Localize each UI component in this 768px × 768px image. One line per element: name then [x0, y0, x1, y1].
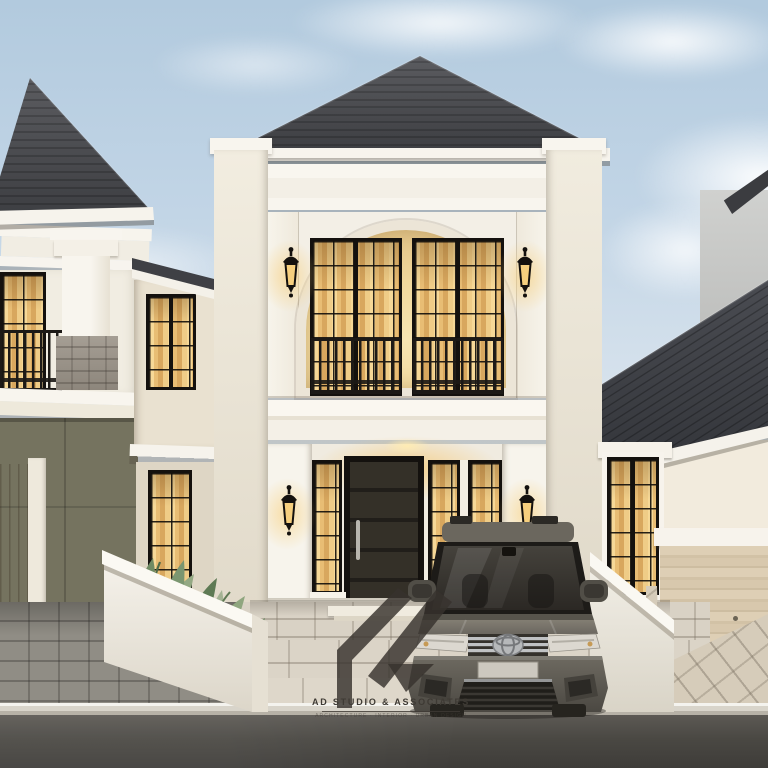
watermark-studio-name: AD STUDIO & ASSOCIATES: [296, 697, 486, 707]
watermark-tagline: ARCHITECTURE · INTERIOR · URBAN DESIGN: [296, 713, 486, 719]
logo-triangle: [388, 664, 434, 692]
architectural-render-scene: AD STUDIO & ASSOCIATES ARCHITECTURE · IN…: [0, 0, 768, 768]
ad-studio-monogram-logo: [0, 0, 768, 768]
watermark-underline: [322, 711, 460, 713]
